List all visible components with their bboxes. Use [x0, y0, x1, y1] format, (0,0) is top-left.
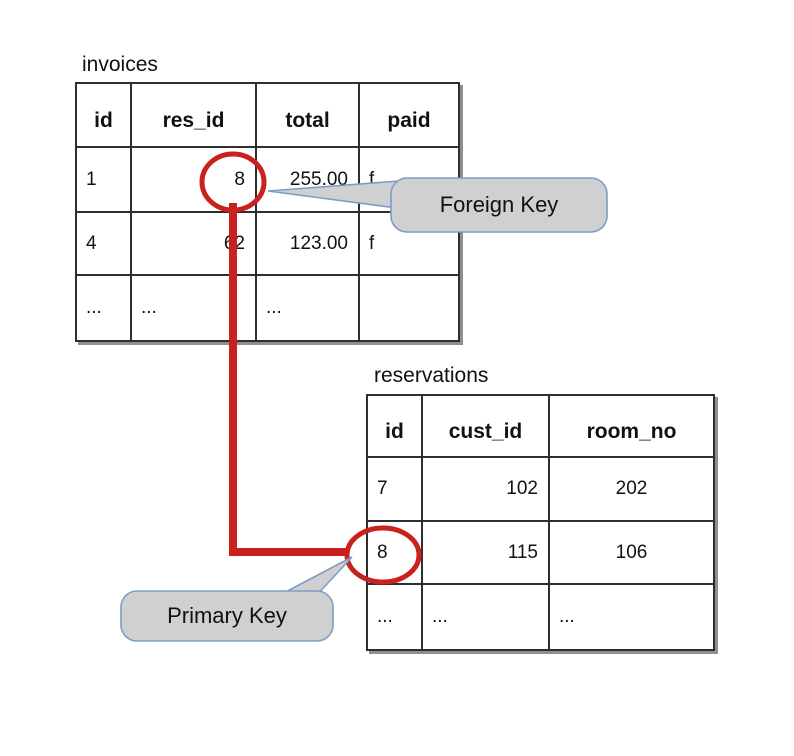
table-cell: ... [256, 275, 359, 341]
invoices-header-paid: paid [359, 83, 459, 147]
table-cell-circled-foreign-key: 8 [131, 147, 256, 212]
table-cell: 1 [76, 147, 131, 212]
table-cell: ... [131, 275, 256, 341]
table-cell-circled-primary-key: 8 [367, 521, 422, 584]
invoices-header-res-id: res_id [131, 83, 256, 147]
table-cell: 106 [549, 521, 714, 584]
table-cell: 202 [549, 457, 714, 521]
invoices-header-total: total [256, 83, 359, 147]
reservations-row-ellipsis: ... ... ... [367, 584, 714, 650]
reservations-row-1: 7 102 202 [367, 457, 714, 521]
table-cell: 115 [422, 521, 549, 584]
table-cell: ... [549, 584, 714, 650]
table-cell: 62 [131, 212, 256, 275]
reservations-row-2: 8 115 106 [367, 521, 714, 584]
table-cell [359, 275, 459, 341]
table-cell: 4 [76, 212, 131, 275]
reservations-header-cust-id: cust_id [422, 395, 549, 457]
table-cell: 102 [422, 457, 549, 521]
table-cell: 123.00 [256, 212, 359, 275]
reservations-header-room-no: room_no [549, 395, 714, 457]
invoices-table-title: invoices [82, 53, 158, 77]
reservations-table-title: reservations [374, 364, 488, 388]
invoices-row-ellipsis: ... ... ... [76, 275, 459, 341]
primary-key-callout-label: Primary Key [121, 591, 333, 641]
table-cell: 7 [367, 457, 422, 521]
reservations-header-row: id cust_id room_no [367, 395, 714, 457]
reservations-header-id: id [367, 395, 422, 457]
table-cell: ... [422, 584, 549, 650]
table-cell: ... [367, 584, 422, 650]
invoices-header-id: id [76, 83, 131, 147]
table-cell: ... [76, 275, 131, 341]
invoices-header-row: id res_id total paid [76, 83, 459, 147]
er-diagram-canvas: invoices id res_id total paid 1 8 255.00… [0, 0, 794, 756]
foreign-key-callout-label: Foreign Key [391, 178, 607, 232]
table-cell: 255.00 [256, 147, 359, 212]
reservations-table: id cust_id room_no 7 102 202 8 115 106 .… [366, 394, 715, 651]
